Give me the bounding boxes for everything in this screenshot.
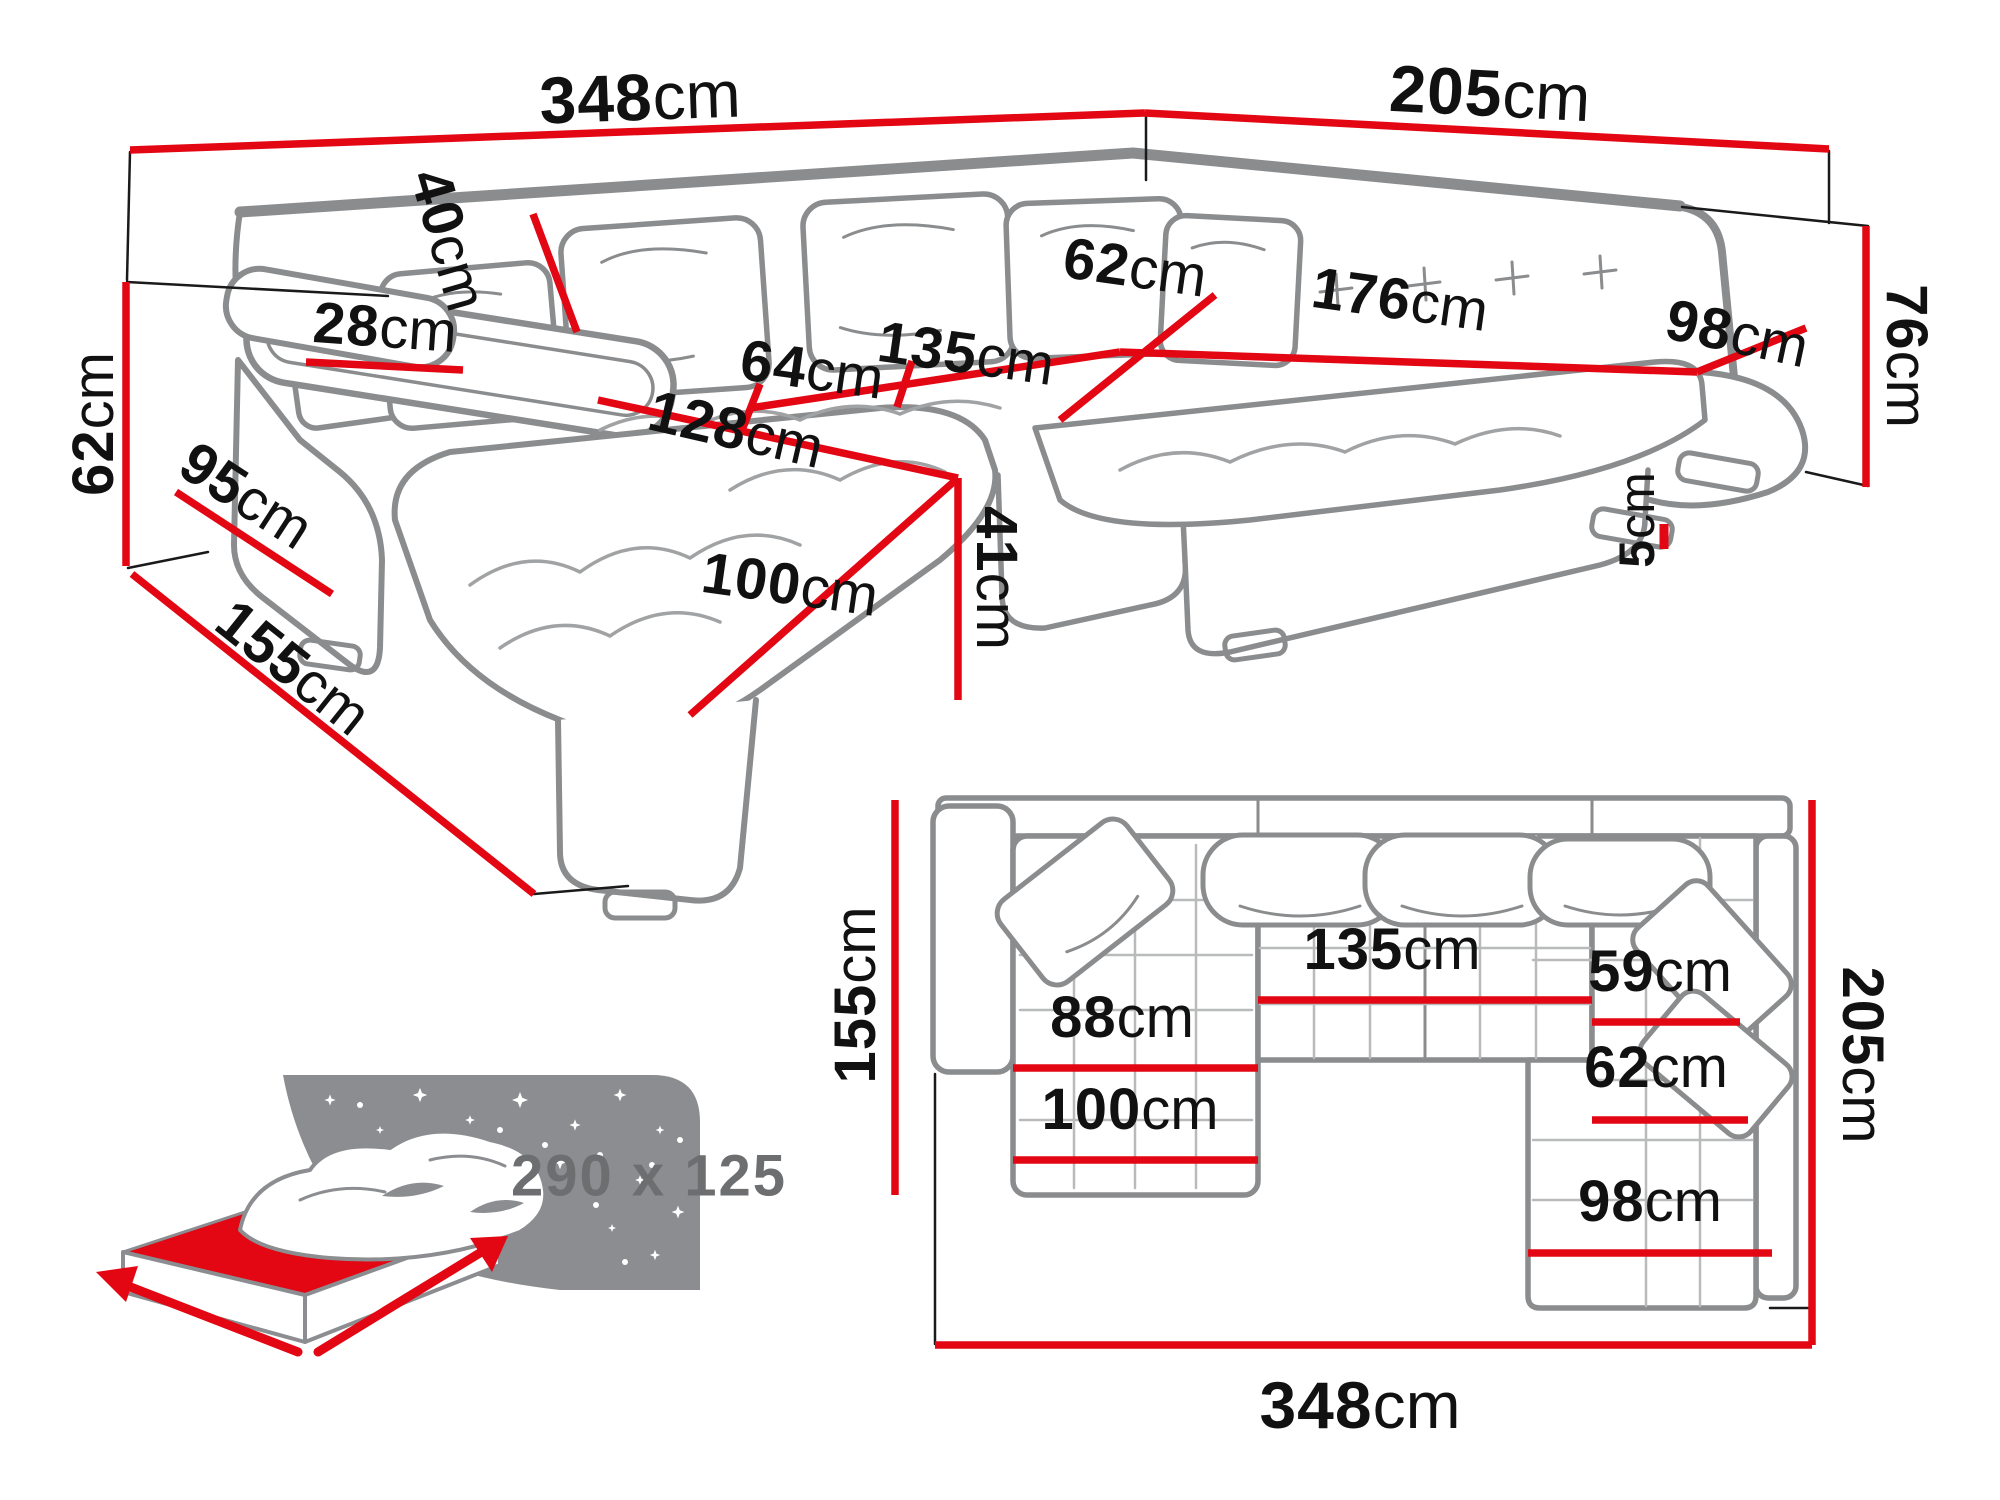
dim-right-width: 205cm [1388, 55, 1592, 131]
plan-dim-chaise-88: 88cm [1050, 989, 1194, 1047]
plan-dim-right-depth: 205cm [1833, 966, 1891, 1143]
plan-dim-right-62: 62cm [1584, 1039, 1728, 1097]
plan-dim-chaise-100: 100cm [1041, 1081, 1218, 1139]
dim-back-width: 348cm [538, 61, 741, 134]
dim-leg-height: 5cm [1612, 472, 1662, 567]
sleeping-function-icon [96, 1075, 700, 1352]
dim-seat-height: 41cm [967, 506, 1025, 650]
plan-dim-right-98: 98cm [1578, 1173, 1722, 1231]
plan-dim-total-width: 348cm [1259, 1372, 1460, 1438]
sleeping-area-size: 290 x 125 [511, 1143, 787, 1210]
plan-dim-left-depth: 155cm [827, 906, 885, 1083]
dim-left-height: 62cm [65, 352, 123, 496]
diagram-artwork [0, 0, 2000, 1500]
dim-right-height: 76cm [1877, 284, 1935, 428]
plan-dim-mid-135: 135cm [1303, 921, 1480, 979]
dimension-diagram: 348cm 205cm 76cm 62cm 155cm 95cm 28cm 40… [0, 0, 2000, 1500]
plan-dim-corner-59: 59cm [1588, 943, 1732, 1001]
